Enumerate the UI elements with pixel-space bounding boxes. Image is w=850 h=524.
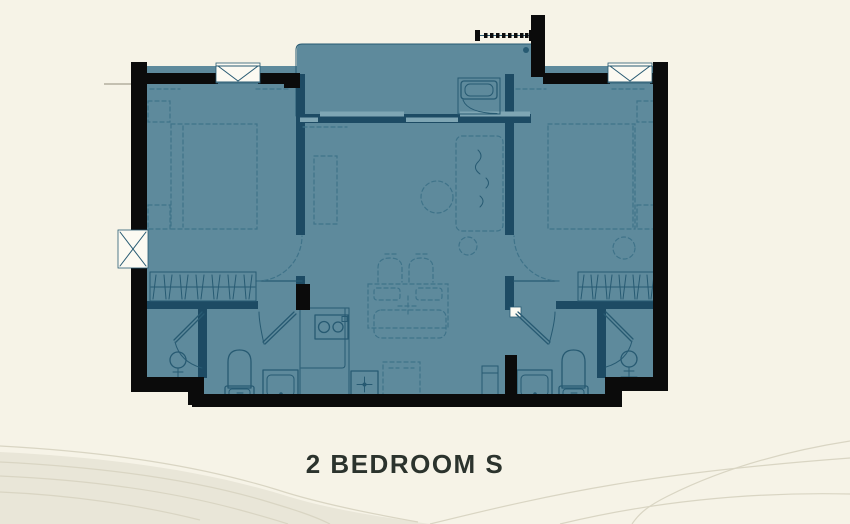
bathroom-left-wc-floor [200, 300, 300, 396]
floor-plan-page: 2 BEDROOM S [0, 0, 850, 524]
floor-drain-icon [523, 47, 529, 53]
window-icon [216, 63, 260, 83]
ac-window-icon [118, 230, 148, 268]
bedroom-left-floor [140, 66, 305, 309]
room-floors [140, 44, 665, 399]
balcony-floor [297, 44, 531, 122]
floor-plan-figure [0, 0, 850, 524]
living-dining-floor [296, 112, 517, 399]
window-icon [608, 63, 652, 83]
plan-title: 2 BEDROOM S [0, 449, 810, 480]
floor-plan [104, 15, 668, 407]
bathroom-left-shower-floor [140, 300, 204, 378]
ac-louver-icon [475, 30, 534, 41]
